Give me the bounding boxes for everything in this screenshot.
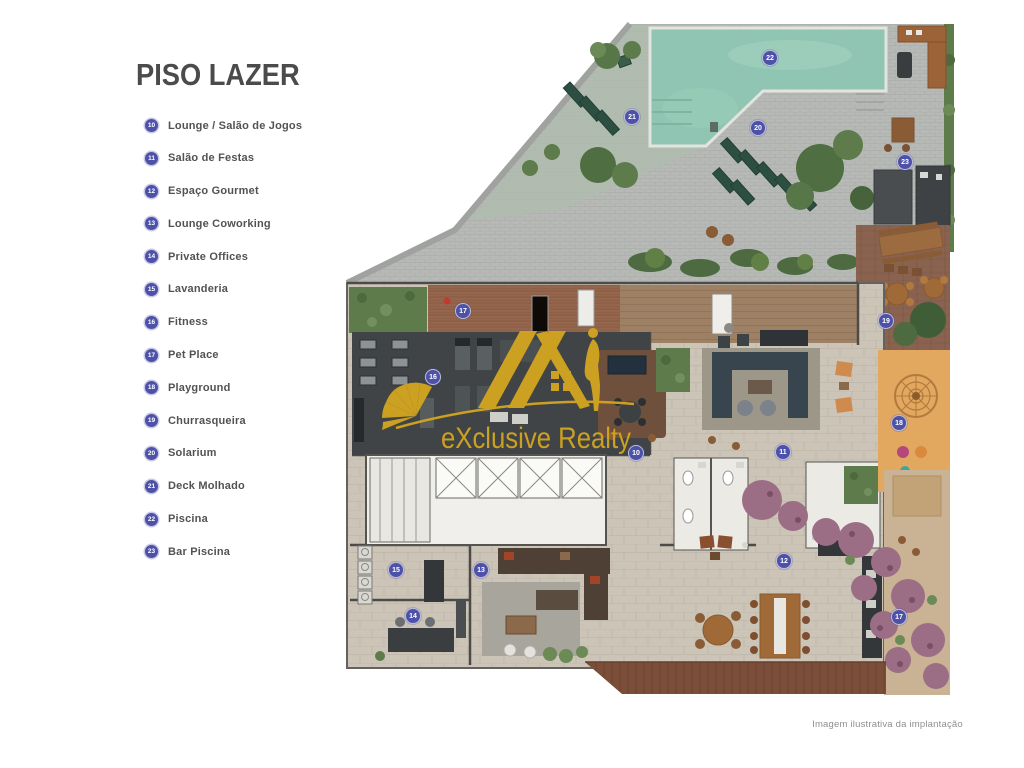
legend-item: 19 Churrasqueira bbox=[145, 414, 302, 427]
legend-item-label: Lounge / Salão de Jogos bbox=[168, 120, 302, 132]
legend-item-number-badge: 21 bbox=[145, 480, 158, 493]
legend-item-number-badge: 13 bbox=[145, 217, 158, 230]
legend-item-number-badge: 15 bbox=[145, 283, 158, 296]
legend-item-number-badge: 22 bbox=[145, 513, 158, 526]
plan-caption: Imagem ilustrativa da implantação bbox=[790, 719, 985, 730]
legend-item-label: Churrasqueira bbox=[168, 415, 246, 427]
legend-item-label: Lounge Coworking bbox=[168, 218, 271, 230]
legend-item: 10 Lounge / Salão de Jogos bbox=[145, 119, 302, 132]
legend-item-label: Pet Place bbox=[168, 349, 219, 361]
legend-item: 21 Deck Molhado bbox=[145, 480, 302, 493]
legend-item-label: Lavanderia bbox=[168, 283, 228, 295]
legend-item-number-badge: 14 bbox=[145, 250, 158, 263]
pet-hydrant-icon bbox=[444, 298, 451, 305]
legend-item-number-badge: 11 bbox=[145, 152, 158, 165]
legend-item-label: Private Offices bbox=[168, 251, 248, 263]
legend-item-label: Fitness bbox=[168, 316, 208, 328]
legend-item-label: Bar Piscina bbox=[168, 546, 230, 558]
legend-item-number-badge: 12 bbox=[145, 185, 158, 198]
legend-item: 15 Lavanderia bbox=[145, 283, 302, 296]
legend-item: 12 Espaço Gourmet bbox=[145, 185, 302, 198]
legend-item: 14 Private Offices bbox=[145, 250, 302, 263]
legend-item-number-badge: 23 bbox=[145, 545, 158, 558]
legend-item: 22 Piscina bbox=[145, 513, 302, 526]
legend-item-label: Deck Molhado bbox=[168, 480, 245, 492]
bar-piscina-pavilion bbox=[874, 166, 950, 226]
legend-item-number-badge: 10 bbox=[145, 119, 158, 132]
legend-item-number-badge: 19 bbox=[145, 414, 158, 427]
legend-item: 18 Playground bbox=[145, 381, 302, 394]
legend-item-label: Piscina bbox=[168, 513, 208, 525]
legend-item-number-badge: 18 bbox=[145, 381, 158, 394]
legend-item-number-badge: 16 bbox=[145, 316, 158, 329]
legend-item-number-badge: 20 bbox=[145, 447, 158, 460]
legend-item: 13 Lounge Coworking bbox=[145, 217, 302, 230]
watermark-brand-text: eXclusive Realty bbox=[441, 422, 631, 455]
legend-item-label: Espaço Gourmet bbox=[168, 185, 259, 197]
elevator-core bbox=[366, 455, 606, 545]
legend-item-label: Solarium bbox=[168, 447, 217, 459]
legend-item: 23 Bar Piscina bbox=[145, 545, 302, 558]
legend-item: 17 Pet Place bbox=[145, 349, 302, 362]
legend-list: 10 Lounge / Salão de Jogos 11 Salão de F… bbox=[145, 119, 302, 578]
brochure-page: eXclusive Realty PISO LAZER 10 Lounge / … bbox=[0, 0, 1024, 768]
bottom-wood-deck bbox=[585, 662, 886, 694]
legend-item-label: Salão de Festas bbox=[168, 152, 254, 164]
legend-item-number-badge: 17 bbox=[145, 349, 158, 362]
legend-item: 11 Salão de Festas bbox=[145, 152, 302, 165]
legend-item: 16 Fitness bbox=[145, 316, 302, 329]
page-title: PISO LAZER bbox=[136, 57, 300, 93]
legend-item: 20 Solarium bbox=[145, 447, 302, 460]
pool-ladder-icon bbox=[710, 122, 718, 132]
legend-item-label: Playground bbox=[168, 382, 231, 394]
